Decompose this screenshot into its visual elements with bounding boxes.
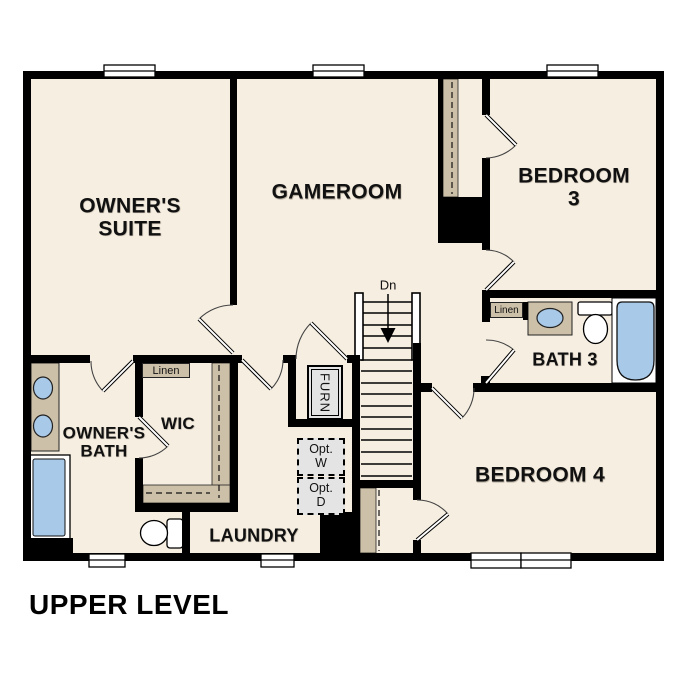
- optional-washer: Opt. W: [297, 438, 345, 476]
- window: [547, 65, 598, 77]
- plan-linework: [0, 0, 687, 687]
- room-label-owners-suite: OWNER'S SUITE: [79, 195, 181, 240]
- optional-dryer: Opt. D: [297, 477, 345, 515]
- bath3-tub: [612, 298, 656, 383]
- furnace-label: FURN: [318, 372, 333, 412]
- room-label-wic: WIC: [161, 415, 195, 433]
- stair-rail: [355, 293, 363, 360]
- linen-closet-wic: Linen: [142, 363, 190, 378]
- owners-bath-vanity: [31, 363, 59, 451]
- room-label-bedroom-4: BEDROOM 4: [475, 465, 605, 488]
- room-label-gameroom: GAMEROOM: [272, 182, 403, 205]
- owners-toilet-icon: [141, 519, 184, 548]
- bedroom3-closet-shelf: [443, 79, 458, 197]
- room-label-laundry: LAUNDRY: [209, 526, 298, 545]
- stair-down-label: Dn: [380, 278, 397, 293]
- furnace-unit-inner: FURN: [311, 369, 339, 416]
- room-label-bath-3: BATH 3: [532, 350, 597, 369]
- room-label-owners-bath: OWNER'S BATH: [63, 425, 146, 462]
- sink-icon: [34, 415, 53, 437]
- bedroom4-closet-shelf: [360, 488, 379, 553]
- window: [104, 65, 155, 77]
- sink-icon: [537, 309, 563, 328]
- linen-closet-bath3: Linen: [490, 302, 523, 318]
- furnace-unit: FURN: [307, 365, 343, 420]
- window-double: [471, 553, 571, 568]
- owners-shower: [29, 455, 70, 540]
- room-label-bedroom-3: BEDROOM 3: [518, 165, 631, 210]
- plan-title: UPPER LEVEL: [29, 589, 229, 621]
- window: [261, 554, 294, 567]
- bath3-vanity: [528, 302, 572, 335]
- window: [89, 554, 125, 567]
- sink-icon: [34, 377, 53, 399]
- window: [313, 65, 364, 77]
- floor-plan-upper-level: OWNER'S SUITE GAMEROOM BEDROOM 3 BATH 3 …: [0, 0, 687, 687]
